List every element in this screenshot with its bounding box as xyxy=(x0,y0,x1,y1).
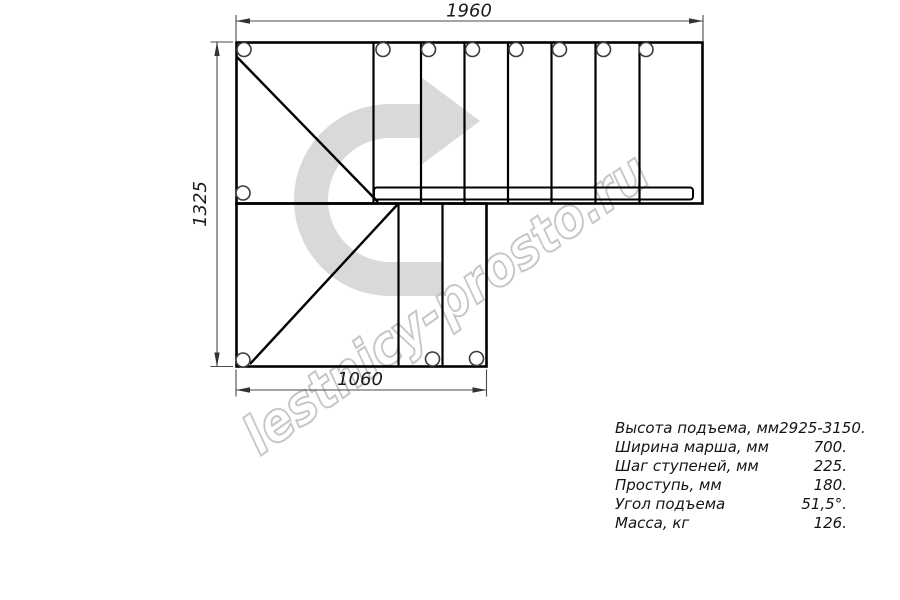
spec-label: Проступь, мм xyxy=(615,476,722,495)
spec-label: Ширина марша, мм xyxy=(615,438,769,457)
spec-label: Высота подъема, мм xyxy=(615,419,779,438)
spec-value: 180. xyxy=(814,476,847,495)
spec-label: Угол подъема xyxy=(615,495,725,514)
spec-row: Ширина марша, мм 700. xyxy=(615,438,847,457)
spec-row: Масса, кг 126. xyxy=(615,514,847,533)
spec-value: 2925-3150. xyxy=(779,419,866,438)
spec-label: Масса, кг xyxy=(615,514,689,533)
dimension-top-label: 1960 xyxy=(446,1,492,22)
spec-row: Угол подъема 51,5°. xyxy=(615,495,847,514)
spec-table: Высота подъема, мм 2925-3150. Ширина мар… xyxy=(615,419,847,533)
dimension-left-label: 1325 xyxy=(190,181,211,227)
dimension-left xyxy=(211,42,234,367)
spec-row: Проступь, мм 180. xyxy=(615,476,847,495)
spec-value: 126. xyxy=(814,514,847,533)
spec-value: 225. xyxy=(814,457,847,476)
spec-label: Шаг ступеней, мм xyxy=(615,457,759,476)
spec-row: Шаг ступеней, мм 225. xyxy=(615,457,847,476)
staircase-drawing-page: lestnicy-prosto.ru xyxy=(0,0,900,600)
spec-value: 700. xyxy=(814,438,847,457)
spec-row: Высота подъема, мм 2925-3150. xyxy=(615,419,847,438)
spec-value: 51,5°. xyxy=(801,495,847,514)
dimension-bottom-label: 1060 xyxy=(337,369,383,390)
